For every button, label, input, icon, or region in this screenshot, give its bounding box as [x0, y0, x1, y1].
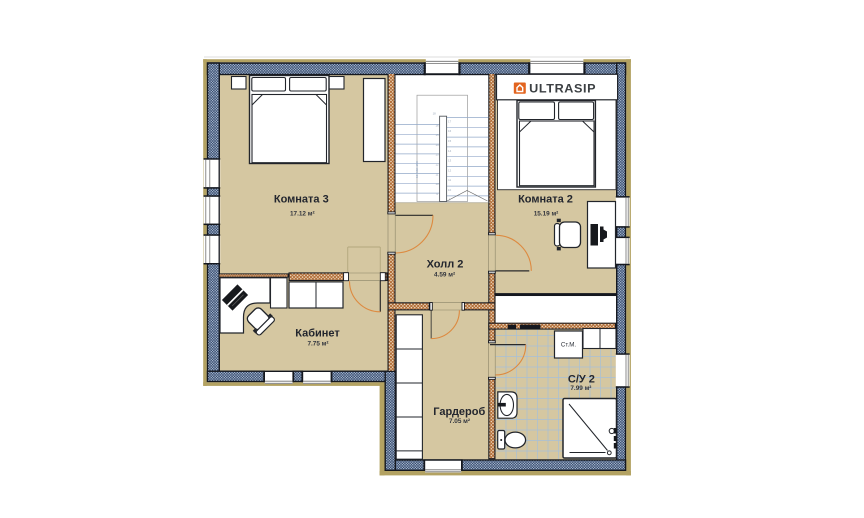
svg-text:Ст.М.: Ст.М.	[561, 342, 576, 349]
svg-text:15: 15	[448, 139, 452, 143]
svg-text:Гардероб: Гардероб	[433, 406, 485, 418]
svg-text:7.99 м²: 7.99 м²	[570, 385, 591, 392]
svg-text:14: 14	[448, 149, 452, 153]
svg-text:С/У 2: С/У 2	[568, 373, 595, 385]
svg-text:15.19 м²: 15.19 м²	[534, 210, 559, 217]
svg-text:16: 16	[448, 129, 452, 133]
svg-text:11: 11	[448, 178, 451, 182]
svg-text:ULTRASIP: ULTRASIP	[529, 82, 596, 96]
svg-text:17: 17	[448, 119, 452, 123]
svg-text:14: 14	[435, 143, 439, 147]
svg-text:16: 16	[435, 123, 439, 127]
svg-text:4.59 м²: 4.59 м²	[434, 272, 455, 279]
svg-text:10: 10	[448, 188, 452, 192]
svg-text:13: 13	[448, 159, 452, 163]
svg-text:12: 12	[448, 168, 452, 172]
svg-text:10: 10	[435, 182, 439, 186]
svg-text:Кабинет: Кабинет	[295, 328, 340, 340]
svg-text:15: 15	[435, 133, 439, 137]
svg-text:7.75 м²: 7.75 м²	[307, 340, 328, 347]
svg-text:17.12 м²: 17.12 м²	[290, 211, 315, 218]
svg-text:Холл 2: Холл 2	[427, 258, 464, 270]
svg-text:12: 12	[435, 163, 439, 167]
svg-text:Комната 3: Комната 3	[274, 194, 329, 206]
svg-text:18×182×250: 18×182×250	[415, 161, 419, 178]
svg-text:11: 11	[436, 172, 439, 176]
svg-text:Комната 2: Комната 2	[518, 194, 573, 206]
svg-text:13: 13	[435, 153, 439, 157]
svg-text:18: 18	[433, 111, 437, 115]
svg-text:7.05 м²: 7.05 м²	[449, 418, 470, 425]
